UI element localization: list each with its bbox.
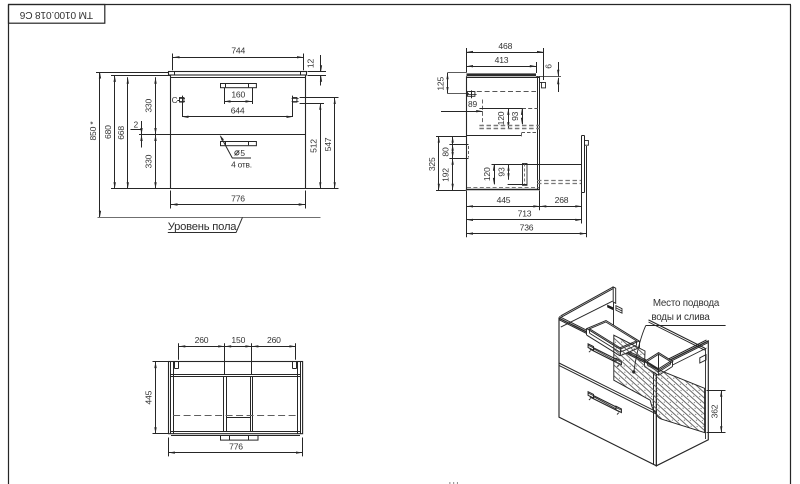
svg-text:150: 150 [231, 335, 245, 345]
svg-text:260: 260 [195, 335, 209, 345]
svg-text:445: 445 [144, 390, 154, 404]
svg-text:воды и слива: воды и слива [651, 312, 710, 323]
svg-text:268: 268 [555, 195, 569, 205]
svg-text:644: 644 [231, 106, 245, 116]
svg-text:6: 6 [543, 64, 553, 69]
svg-text:192: 192 [441, 168, 451, 182]
svg-text:120: 120 [482, 167, 492, 181]
svg-text:362: 362 [709, 404, 719, 418]
svg-text:80: 80 [441, 147, 451, 157]
svg-text:468: 468 [498, 41, 512, 51]
svg-text:Уровень пола: Уровень пола [168, 221, 238, 233]
svg-text:4 отв.: 4 отв. [231, 160, 252, 170]
svg-text:776: 776 [231, 193, 245, 203]
svg-text:668: 668 [116, 126, 126, 140]
svg-text:260: 260 [267, 335, 281, 345]
svg-text:93: 93 [497, 167, 507, 177]
svg-text:5: 5 [240, 148, 245, 158]
svg-text:776: 776 [229, 442, 243, 452]
svg-text:89: 89 [468, 99, 477, 109]
svg-text:12: 12 [305, 59, 315, 69]
svg-text:330: 330 [144, 99, 154, 113]
svg-text:512: 512 [308, 139, 318, 153]
svg-text:325: 325 [427, 157, 437, 171]
svg-text:850 *: 850 * [88, 121, 98, 141]
svg-text:2: 2 [134, 120, 139, 129]
svg-text:330: 330 [144, 154, 154, 168]
svg-text:С: С [172, 95, 178, 105]
svg-text:744: 744 [231, 45, 245, 55]
svg-text:160: 160 [231, 89, 245, 99]
svg-text:125: 125 [436, 77, 446, 91]
svg-text:ТМ 0100.018 С6: ТМ 0100.018 С6 [19, 9, 93, 20]
svg-text:120: 120 [496, 111, 506, 125]
svg-text:680: 680 [103, 125, 113, 139]
svg-text:713: 713 [518, 209, 532, 219]
svg-text:547: 547 [323, 137, 333, 151]
svg-text:93: 93 [510, 111, 520, 121]
svg-text:Место подвода: Место подвода [653, 298, 720, 309]
svg-text:413: 413 [495, 55, 509, 65]
svg-text:736: 736 [520, 223, 534, 233]
svg-text:445: 445 [497, 195, 511, 205]
